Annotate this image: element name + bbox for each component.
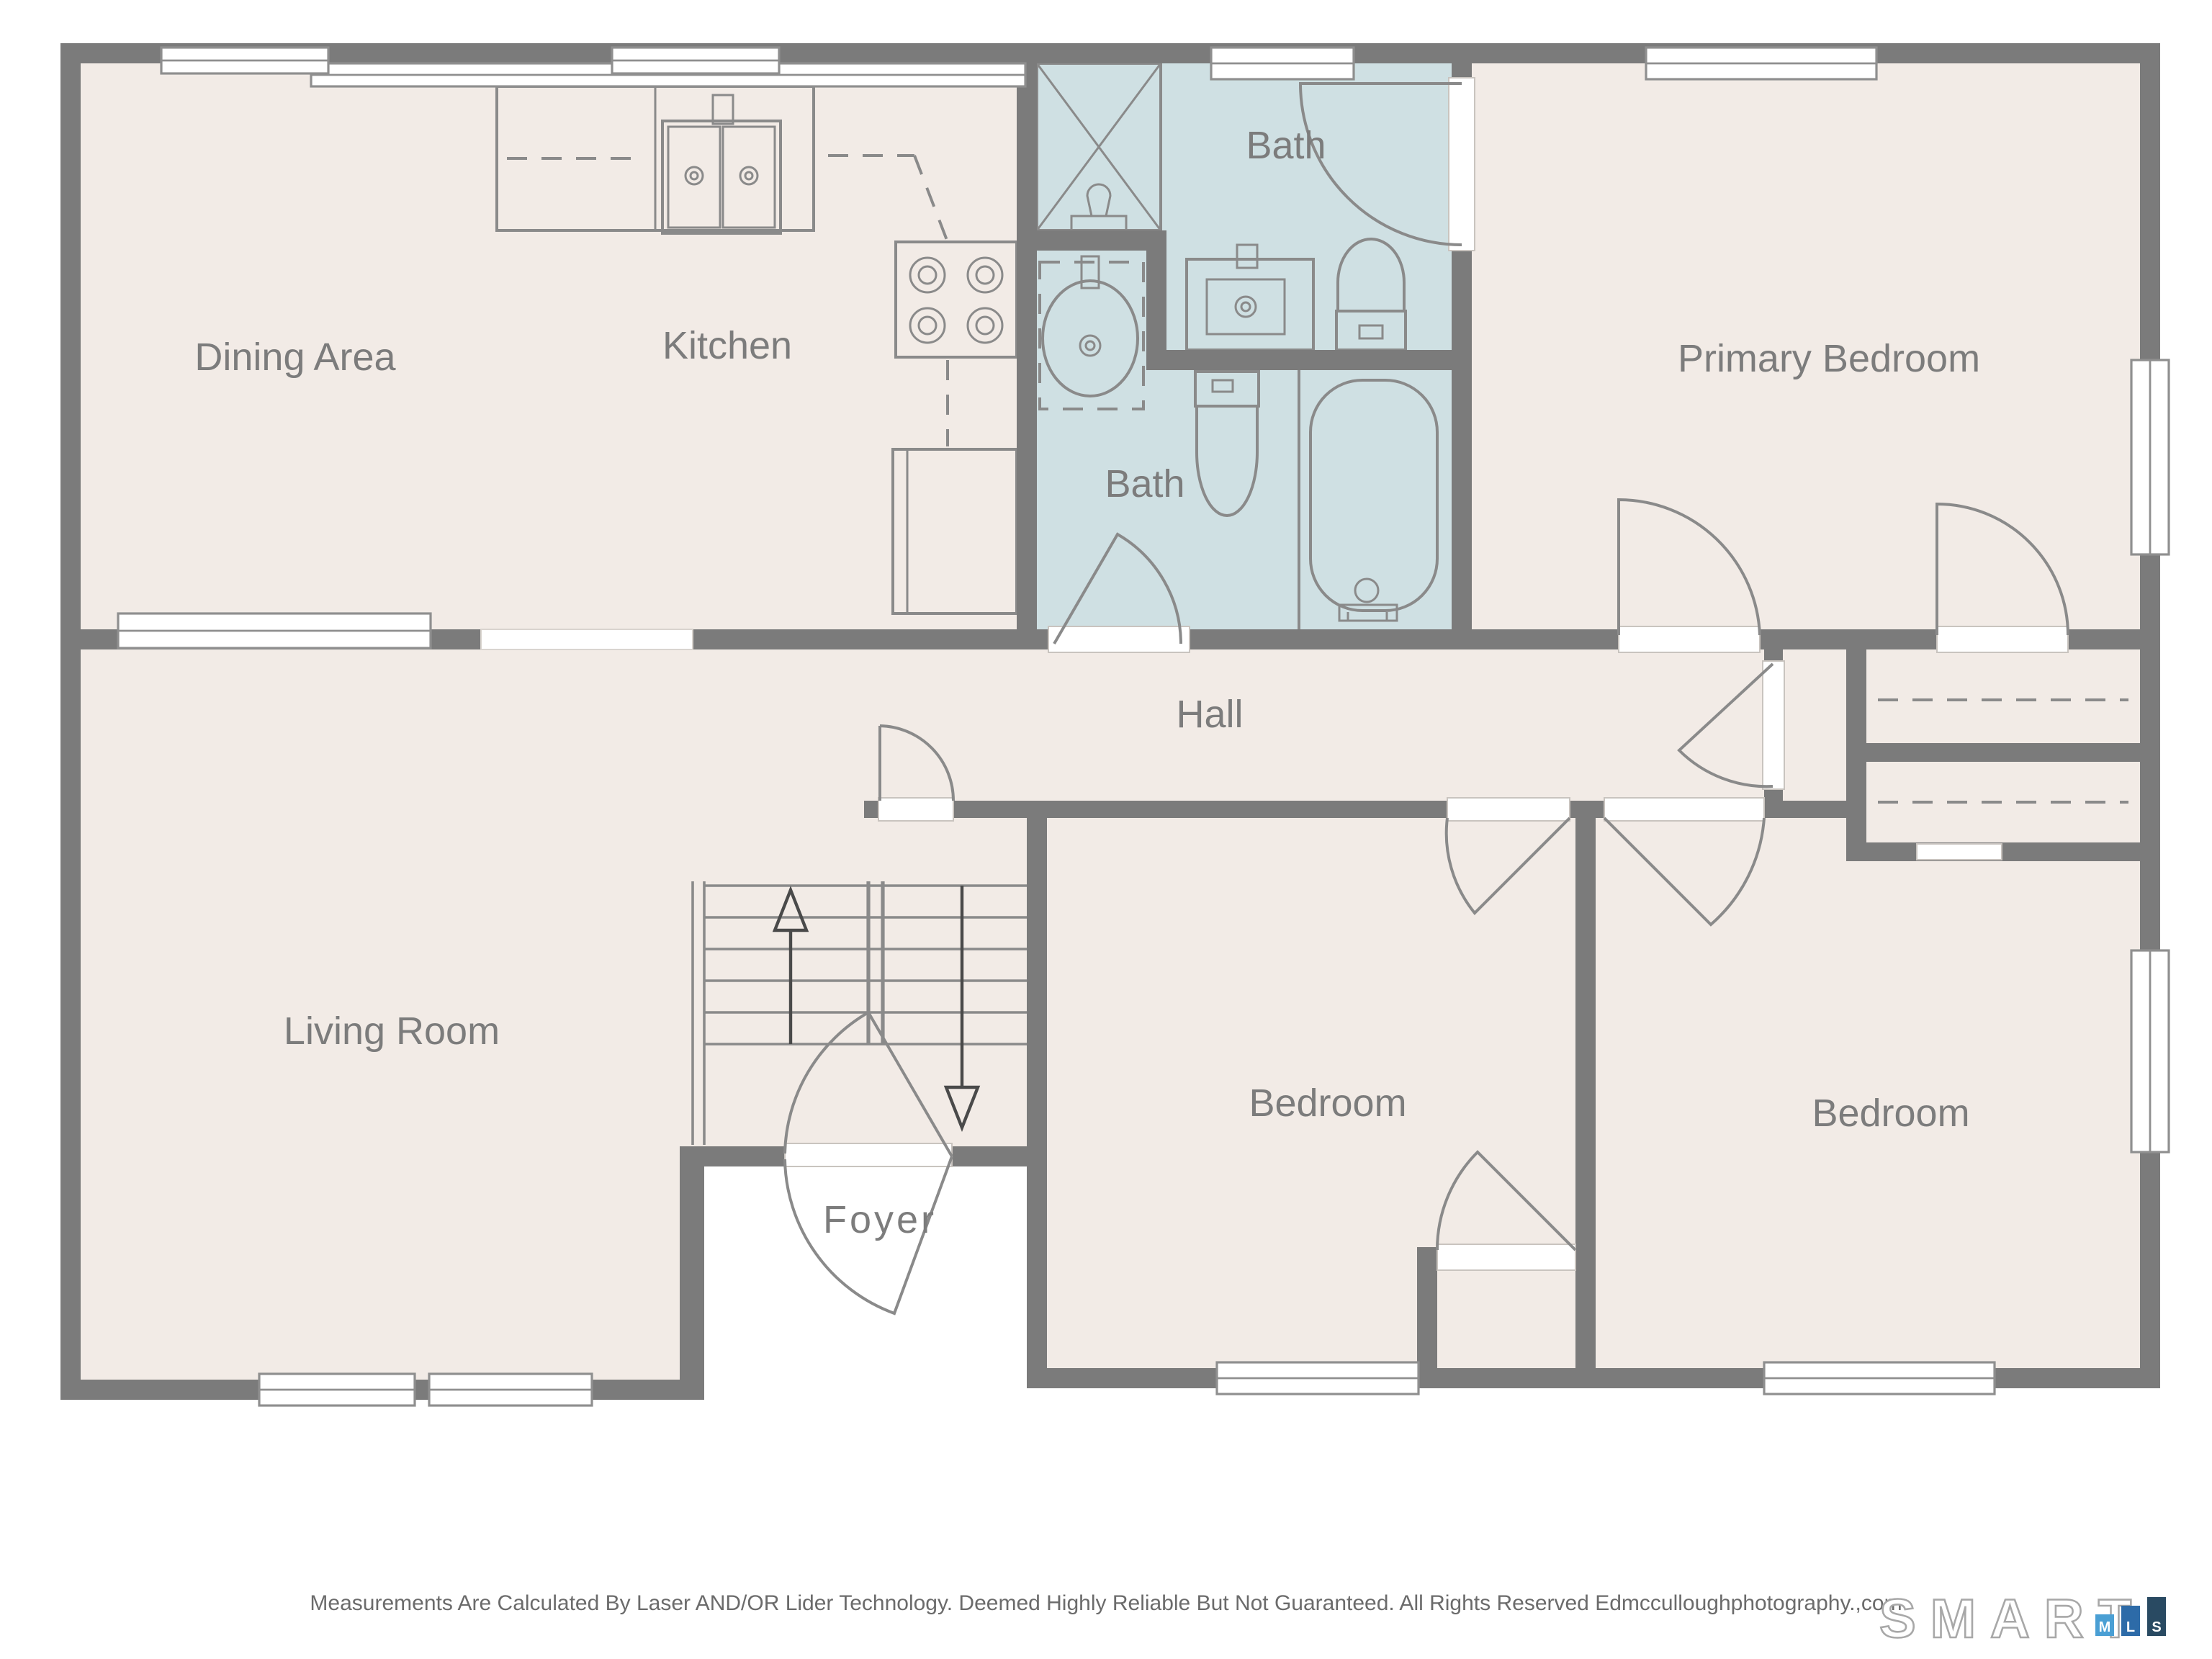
label-primary-bedroom: Primary Bedroom bbox=[1678, 337, 1980, 380]
window-primary-top bbox=[1646, 48, 1876, 79]
window-primary-right bbox=[2131, 360, 2169, 554]
label-foyer: Foyer bbox=[823, 1198, 937, 1241]
window-living-2 bbox=[429, 1374, 592, 1406]
label-bath-upper: Bath bbox=[1246, 124, 1326, 167]
floor-plan-page: Dining Area Kitchen Bath Bath Primary Be… bbox=[0, 0, 2212, 1659]
smart-mls-logo: SMART M L S bbox=[1879, 1588, 2166, 1650]
logo-letter-l: L bbox=[2126, 1619, 2135, 1635]
label-living-room: Living Room bbox=[284, 1010, 500, 1053]
window-bath bbox=[1211, 48, 1354, 79]
label-hall: Hall bbox=[1176, 693, 1243, 736]
pass-through-window bbox=[118, 613, 431, 648]
logo-letter-m: M bbox=[2099, 1619, 2111, 1635]
closet-slider-panel bbox=[1917, 844, 2002, 860]
window-bedroom-middle bbox=[1217, 1362, 1419, 1394]
window-bedroom-right-side bbox=[2131, 950, 2169, 1152]
label-bedroom-right: Bedroom bbox=[1812, 1092, 1969, 1135]
dining-living-opening bbox=[481, 629, 693, 649]
label-bath-lower: Bath bbox=[1105, 462, 1184, 505]
label-kitchen: Kitchen bbox=[662, 324, 792, 367]
disclaimer-text: Measurements Are Calculated By Laser AND… bbox=[310, 1591, 1902, 1615]
window-bedroom-right-bottom bbox=[1764, 1362, 1995, 1394]
window-living-1 bbox=[259, 1374, 415, 1406]
label-dining-area: Dining Area bbox=[194, 336, 396, 379]
label-bedroom-middle: Bedroom bbox=[1249, 1082, 1406, 1125]
logo-letter-s: S bbox=[2152, 1619, 2161, 1635]
floor-plan-canvas: Dining Area Kitchen Bath Bath Primary Be… bbox=[0, 0, 2212, 1659]
